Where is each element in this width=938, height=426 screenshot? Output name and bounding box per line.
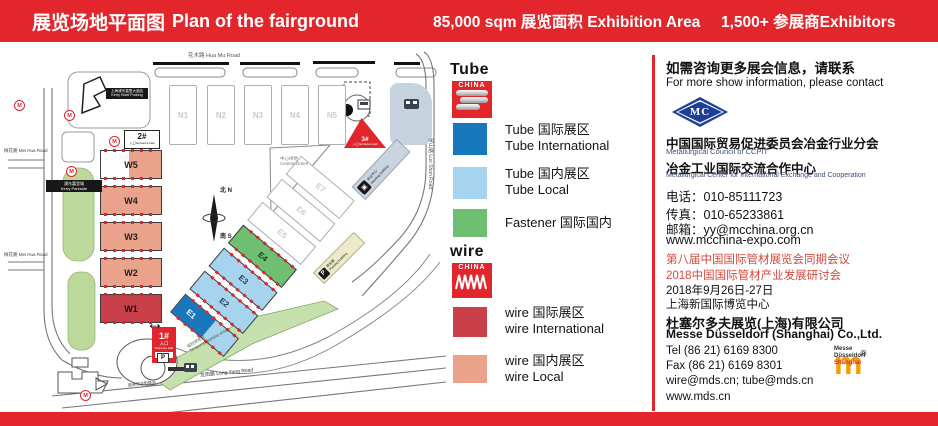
metro-icon: M: [14, 100, 25, 111]
hall-w2: W2: [100, 258, 162, 287]
entrance-2-label: 入口 Entrance Hall: [130, 142, 155, 145]
org1-name-en: Metallurgical Council of CCPIT: [666, 147, 768, 156]
hall-n3: N3: [244, 85, 272, 145]
tube-shape: [456, 104, 480, 110]
hall-n5-label: N5: [327, 111, 337, 120]
hall-e1-label: E1: [184, 307, 197, 320]
stat-exhibition-area: 85,000 sqm 展览面积 Exhibition Area: [433, 0, 700, 42]
road-label-meihua-1: 梅花路 Mei Hua Road: [4, 148, 48, 153]
bus-terminal: [390, 83, 432, 145]
contact-heading-en: For more show information, please contac…: [666, 77, 883, 89]
hall-e6-label: E6: [294, 204, 307, 217]
red-divider: [652, 55, 655, 411]
metro-icon: M: [80, 390, 91, 401]
conference-line-1: 第八届中国国际管材展览会同期会议: [666, 251, 850, 267]
legend-label-tube-local: Tube 国内展区 Tube Local: [505, 166, 590, 198]
hall-n2-label: N2: [216, 111, 226, 120]
legend-swatch-fastener: [453, 209, 487, 237]
hall-w5: W5: [100, 150, 162, 179]
fairground-map: N1 N2 N3 N4 N5 W5 W4 W3 W2 W1 E1 E2 E3 E…: [0, 42, 446, 412]
hall-w4: W4: [100, 186, 162, 215]
legend-swatch-tube-local: [453, 167, 487, 199]
hall-e3-label: E3: [236, 273, 249, 286]
tube-china-logo-word: Tube: [450, 61, 489, 79]
entrance-1-label-en: Entrance Hall: [155, 347, 173, 350]
page-title-zh: 展览场地平面图: [32, 0, 165, 42]
two-way-arrow-icon: ↔: [146, 314, 164, 332]
road-label-luoshan: 罗山路 Luo Shan Road: [426, 138, 432, 189]
messe-name-en: Messe Düsseldorf (Shanghai) Co.,Ltd.: [666, 327, 882, 341]
hall-n3-label: N3: [253, 111, 263, 120]
entrance-3-label: 入口 Entrance Hall: [353, 143, 378, 146]
contact-website: www.mcchina-expo.com: [666, 233, 801, 247]
hall-n5: N5: [318, 85, 346, 145]
wire-china-logo: CHINA: [452, 263, 492, 298]
metro-icon: M: [66, 166, 77, 177]
hall-w2-label: W2: [124, 268, 138, 278]
wire-china-logo-sub: CHINA: [452, 264, 492, 271]
tube-shape: [456, 90, 488, 96]
legend-label-tube-international: Tube 国际展区 Tube International: [505, 122, 609, 154]
top-banner: 展览场地平面图 Plan of the fairground 85,000 sq…: [0, 0, 938, 42]
kerry-parkside-label: 浦东嘉里城 Kerry Parkside: [46, 180, 102, 192]
page-title-en: Plan of the fairground: [172, 0, 359, 42]
messe-email: wire@mds.cn; tube@mds.cn: [666, 375, 813, 387]
hall-n1: N1: [169, 85, 197, 145]
road-label-meihua-2: 梅花路 Mei Hua Road: [4, 252, 48, 257]
org2-name-en: Metallurgical Center for International E…: [666, 172, 866, 179]
parking-p-icon: P: [157, 353, 169, 363]
hall-n2: N2: [207, 85, 235, 145]
hall-w1-label: W1: [124, 304, 138, 314]
legend-label-wire-local: wire 国内展区 wire Local: [505, 353, 584, 385]
contact-tel: 电话：010-85111723: [666, 186, 782, 205]
compass-south-label: 南 S: [220, 234, 232, 241]
longyang-road: [52, 356, 446, 412]
hall-n4-label: N4: [290, 111, 300, 120]
compass-north-label: 北 N: [220, 188, 232, 195]
hall-w3: W3: [100, 222, 162, 251]
bus-icon: [404, 99, 419, 109]
conference-line-2: 2018中国国际管材产业发展研讨会: [666, 267, 841, 283]
huamu-road: [153, 61, 436, 77]
hall-w4-label: W4: [124, 196, 138, 206]
tube-china-logo-sub: CHINA: [452, 82, 492, 89]
messe-logo-caption: Messe Düsseldorf Shanghai: [834, 346, 865, 367]
hall-n4: N4: [281, 85, 309, 145]
contact-panel: 如需咨询更多展会信息，请联系 For more show information…: [666, 55, 934, 411]
green-strip-2: [68, 272, 95, 350]
legend-label-fastener: Fastener 国际国内: [505, 215, 612, 231]
messe-tel: Tel (86 21) 6169 8300: [666, 345, 778, 357]
legend-swatch-tube-international: [453, 123, 487, 155]
entrance-2: 2# 入口 Entrance Hall: [124, 130, 160, 149]
messe-fax: Fax (86 21) 6169 8301: [666, 360, 782, 372]
legend-label-wire-international: wire 国际展区 wire International: [505, 305, 604, 337]
legend-swatch-wire-local: [453, 355, 487, 383]
central-green-label: 中心绿地 Central Green: [280, 156, 308, 166]
kerry-parkside-boundary: [68, 72, 150, 128]
tube-shape: [460, 97, 488, 103]
hall-e4-label: E4: [256, 250, 269, 263]
fairground-plan-page: 展览场地平面图 Plan of the fairground 85,000 sq…: [0, 0, 938, 426]
conference-venue: 上海新国际博览中心: [666, 296, 770, 312]
tube-china-logo: CHINA: [452, 81, 492, 118]
hall-n1-label: N1: [178, 111, 188, 120]
hall-e7-label: E7: [314, 181, 327, 194]
metro-icon: M: [64, 110, 75, 121]
stat-exhibitors: 1,500+ 参展商Exhibitors: [721, 0, 895, 42]
contact-heading-zh: 如需咨询更多展会信息，请联系: [666, 57, 855, 77]
hall-w5-label: W5: [124, 160, 138, 170]
wire-zigzag-shape: [454, 271, 490, 291]
metro-icon: M: [109, 136, 120, 147]
hall-e5-label: E5: [275, 227, 288, 240]
messe-website: www.mds.cn: [666, 391, 731, 403]
wire-china-logo-word: wire: [450, 243, 484, 261]
hall-e2-label: E2: [217, 296, 230, 309]
legend-panel: Tube CHINA Tube 国际展区 Tube International …: [448, 55, 650, 411]
hall-w3-label: W3: [124, 232, 138, 242]
white-block: [62, 132, 94, 162]
kerry-hotel-label: 上海浦东嘉里大酒店 Kerry Hotel Pudong: [106, 88, 148, 99]
bottom-red-bar: [0, 412, 938, 426]
legend-swatch-wire-international: [453, 307, 487, 337]
road-label-huamu: 花木路 Hua Mu Road: [188, 53, 240, 59]
